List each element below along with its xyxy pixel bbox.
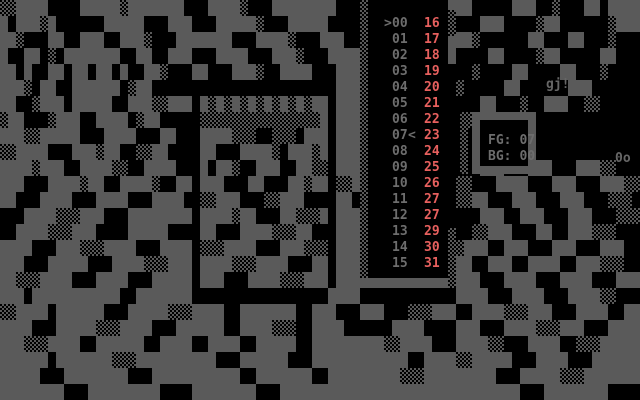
scrollbar-track-middle[interactable] bbox=[448, 64, 456, 228]
scrollbar-thumb[interactable] bbox=[448, 36, 456, 64]
art-run bbox=[608, 304, 624, 320]
art-run bbox=[72, 96, 112, 112]
palette-left-value: 13 bbox=[392, 224, 408, 240]
art-run bbox=[608, 192, 632, 208]
art-run bbox=[192, 176, 200, 192]
art-run bbox=[456, 272, 480, 288]
art-run bbox=[488, 256, 512, 272]
palette-right-value: 16 bbox=[424, 16, 440, 32]
art-run bbox=[88, 256, 112, 272]
art-run bbox=[272, 128, 296, 144]
art-run bbox=[512, 0, 536, 16]
art-run bbox=[328, 288, 360, 304]
art-run bbox=[168, 96, 192, 112]
art-run bbox=[240, 304, 296, 320]
palette-row-15[interactable]: 1531 bbox=[376, 256, 456, 272]
palette-right-value: 25 bbox=[424, 160, 440, 176]
art-run bbox=[616, 32, 640, 48]
art-run bbox=[64, 32, 80, 48]
art-run bbox=[288, 32, 296, 48]
art-run bbox=[304, 96, 312, 112]
art-run bbox=[456, 336, 488, 352]
art-run bbox=[208, 96, 216, 112]
palette-left-value: 11 bbox=[392, 192, 408, 208]
statusbox-shadow-column bbox=[460, 112, 468, 174]
palette-right-value: 22 bbox=[424, 112, 440, 128]
palette-left-value: 06 bbox=[392, 112, 408, 128]
art-run bbox=[288, 96, 296, 112]
art-run bbox=[16, 0, 48, 16]
art-run bbox=[352, 176, 360, 192]
scrollbar-track-lower[interactable] bbox=[448, 228, 456, 278]
palette-row-05[interactable]: 0521 bbox=[376, 96, 456, 112]
art-run bbox=[576, 160, 600, 176]
art-run bbox=[528, 256, 560, 272]
art-run bbox=[624, 256, 640, 272]
art-run bbox=[608, 384, 640, 400]
art-run bbox=[0, 128, 24, 144]
palette-row-03[interactable]: 0319 bbox=[376, 64, 456, 80]
art-run bbox=[560, 0, 584, 16]
art-run bbox=[192, 256, 200, 272]
art-run bbox=[608, 0, 640, 16]
art-run bbox=[32, 320, 56, 336]
art-run bbox=[552, 304, 576, 320]
art-run bbox=[168, 64, 192, 80]
bg-status-line: BG:00 bbox=[488, 150, 535, 164]
art-row bbox=[0, 112, 640, 128]
art-row bbox=[0, 208, 640, 224]
art-run bbox=[216, 48, 248, 64]
art-run bbox=[600, 288, 616, 304]
art-run bbox=[560, 320, 584, 336]
art-run bbox=[48, 32, 64, 48]
art-run bbox=[80, 0, 120, 16]
art-run bbox=[80, 160, 112, 176]
art-run bbox=[584, 320, 608, 336]
art-run bbox=[192, 288, 328, 304]
palette-row-01[interactable]: 0117 bbox=[376, 32, 456, 48]
art-run bbox=[80, 112, 96, 128]
palette-row-07[interactable]: 07<23 bbox=[376, 128, 456, 144]
art-run bbox=[336, 64, 360, 80]
art-run bbox=[80, 32, 104, 48]
fg-status-line: FG:07 bbox=[488, 134, 535, 148]
art-run bbox=[104, 240, 136, 256]
art-run bbox=[256, 64, 264, 80]
art-row bbox=[0, 240, 640, 256]
art-run bbox=[248, 272, 280, 288]
art-run bbox=[40, 48, 48, 64]
art-run bbox=[240, 96, 248, 112]
art-run bbox=[560, 336, 576, 352]
art-run bbox=[152, 176, 160, 192]
art-run bbox=[336, 304, 360, 320]
palette-left-value: 01 bbox=[392, 32, 408, 48]
art-run bbox=[128, 192, 152, 208]
art-run bbox=[168, 304, 192, 320]
art-run bbox=[128, 224, 168, 240]
art-run bbox=[472, 192, 488, 208]
art-row bbox=[0, 48, 640, 64]
corner-signature: 0o bbox=[615, 151, 631, 167]
art-run bbox=[296, 128, 304, 144]
art-run bbox=[136, 352, 216, 368]
fg-bg-status-box: FG:07 BG:00 bbox=[472, 112, 536, 174]
art-run bbox=[456, 256, 472, 272]
art-run bbox=[312, 160, 328, 176]
art-run bbox=[320, 32, 344, 48]
art-run bbox=[392, 320, 424, 336]
art-run bbox=[40, 160, 64, 176]
art-run bbox=[464, 80, 504, 96]
color-palette-panel: >001601170218031904200521062207<23082409… bbox=[360, 0, 456, 278]
art-run bbox=[328, 176, 336, 192]
art-run bbox=[328, 128, 336, 144]
art-run bbox=[608, 320, 640, 336]
art-run bbox=[480, 272, 504, 288]
art-run bbox=[128, 80, 136, 96]
art-run bbox=[544, 384, 608, 400]
art-run bbox=[40, 80, 56, 96]
art-run bbox=[64, 384, 88, 400]
palette-row-11[interactable]: 1127 bbox=[376, 192, 456, 208]
art-run bbox=[208, 160, 216, 176]
art-run bbox=[72, 272, 96, 288]
art-run bbox=[280, 64, 312, 80]
art-run bbox=[544, 16, 560, 32]
art-run bbox=[320, 112, 328, 128]
art-run bbox=[64, 368, 128, 384]
art-run bbox=[304, 176, 312, 192]
art-run bbox=[240, 192, 264, 208]
art-run bbox=[208, 64, 232, 80]
art-run bbox=[280, 272, 304, 288]
art-run bbox=[568, 224, 592, 240]
art-run bbox=[504, 240, 528, 256]
art-run bbox=[8, 112, 24, 128]
art-row bbox=[0, 176, 640, 192]
art-run bbox=[40, 96, 64, 112]
art-run bbox=[24, 336, 48, 352]
art-run bbox=[112, 160, 128, 176]
art-run bbox=[336, 192, 352, 208]
art-run bbox=[504, 208, 520, 224]
art-run bbox=[528, 96, 544, 112]
art-run bbox=[584, 96, 600, 112]
art-run bbox=[200, 272, 224, 288]
art-run bbox=[248, 96, 256, 112]
art-row bbox=[0, 336, 640, 352]
art-run bbox=[216, 224, 240, 240]
art-run bbox=[528, 304, 552, 320]
art-run bbox=[328, 96, 336, 112]
art-run bbox=[48, 336, 80, 352]
palette-right-value: 29 bbox=[424, 224, 440, 240]
art-run bbox=[472, 352, 512, 368]
art-run bbox=[568, 80, 592, 96]
art-run bbox=[152, 368, 240, 384]
palette-left-value: 03 bbox=[392, 64, 408, 80]
palette-left-value: 07 bbox=[392, 128, 408, 144]
art-run bbox=[232, 64, 256, 80]
art-run bbox=[504, 48, 536, 64]
art-run bbox=[536, 48, 544, 64]
art-run bbox=[16, 192, 40, 208]
art-run bbox=[248, 0, 272, 16]
art-run bbox=[24, 48, 40, 64]
palette-row-10[interactable]: 1026 bbox=[376, 176, 456, 192]
art-run bbox=[432, 304, 456, 320]
art-run bbox=[504, 304, 528, 320]
art-run bbox=[552, 224, 568, 240]
art-run bbox=[328, 160, 336, 176]
art-run bbox=[328, 48, 360, 64]
art-run bbox=[328, 272, 336, 288]
art-run bbox=[168, 144, 200, 160]
art-run bbox=[56, 80, 72, 96]
art-run bbox=[136, 288, 192, 304]
art-run bbox=[160, 64, 168, 80]
art-run bbox=[88, 176, 104, 192]
art-run bbox=[216, 16, 256, 32]
art-run bbox=[472, 256, 488, 272]
art-run bbox=[480, 96, 496, 112]
art-run bbox=[96, 64, 112, 80]
art-run bbox=[240, 352, 288, 368]
art-run bbox=[584, 192, 608, 208]
art-run bbox=[72, 224, 96, 240]
art-row bbox=[0, 160, 640, 176]
art-run bbox=[256, 16, 264, 32]
art-run bbox=[608, 16, 616, 32]
art-run bbox=[272, 0, 336, 16]
art-run bbox=[544, 208, 568, 224]
art-run bbox=[296, 48, 304, 64]
art-run bbox=[320, 208, 328, 224]
art-run bbox=[48, 0, 80, 16]
art-run bbox=[32, 160, 40, 176]
art-run bbox=[264, 96, 272, 112]
art-run bbox=[312, 368, 328, 384]
art-run bbox=[240, 224, 272, 240]
art-run bbox=[200, 176, 224, 192]
art-run bbox=[16, 32, 24, 48]
art-run bbox=[0, 48, 8, 64]
art-row bbox=[0, 0, 640, 16]
art-run bbox=[104, 32, 120, 48]
art-run bbox=[584, 368, 640, 384]
art-run bbox=[568, 208, 592, 224]
palette-left-value: 14 bbox=[392, 240, 408, 256]
art-run bbox=[16, 224, 48, 240]
art-run bbox=[624, 176, 640, 192]
art-run bbox=[0, 80, 24, 96]
palette-row-06[interactable]: 0622 bbox=[376, 112, 456, 128]
art-run bbox=[328, 368, 400, 384]
art-run bbox=[160, 240, 192, 256]
art-run bbox=[296, 336, 312, 352]
art-run bbox=[16, 96, 32, 112]
art-run bbox=[488, 48, 504, 64]
art-run bbox=[480, 32, 528, 48]
art-run bbox=[328, 112, 336, 128]
art-run bbox=[600, 176, 624, 192]
art-run bbox=[512, 224, 536, 240]
art-run bbox=[56, 112, 80, 128]
art-run bbox=[512, 192, 536, 208]
art-run bbox=[104, 176, 120, 192]
art-run bbox=[280, 144, 288, 160]
palette-left-value: 02 bbox=[392, 48, 408, 64]
art-run bbox=[128, 96, 152, 112]
art-run bbox=[136, 48, 152, 64]
art-run bbox=[320, 144, 328, 160]
art-run bbox=[200, 96, 208, 112]
palette-row-08[interactable]: 0824 bbox=[376, 144, 456, 160]
art-run bbox=[152, 80, 336, 96]
palette-right-value: 20 bbox=[424, 80, 440, 96]
art-run bbox=[192, 96, 200, 112]
palette-row-13[interactable]: 1329 bbox=[376, 224, 456, 240]
art-run bbox=[144, 112, 160, 128]
art-run bbox=[160, 336, 192, 352]
art-run bbox=[160, 176, 176, 192]
art-run bbox=[504, 272, 536, 288]
art-run bbox=[560, 48, 600, 64]
scrollbar-top-cap bbox=[448, 0, 456, 10]
palette-right-value: 26 bbox=[424, 176, 440, 192]
art-run bbox=[592, 224, 616, 240]
art-run bbox=[312, 352, 408, 368]
art-run bbox=[120, 32, 144, 48]
art-run bbox=[144, 16, 168, 32]
art-run bbox=[0, 384, 64, 400]
art-run bbox=[312, 256, 328, 272]
art-run bbox=[200, 160, 208, 176]
art-run bbox=[144, 336, 160, 352]
art-run bbox=[624, 240, 640, 256]
art-run bbox=[328, 208, 336, 224]
art-run bbox=[256, 384, 280, 400]
art-run bbox=[120, 144, 136, 160]
art-run bbox=[472, 32, 480, 48]
art-run bbox=[64, 48, 120, 64]
art-run bbox=[16, 16, 40, 32]
art-row bbox=[0, 64, 640, 80]
art-run bbox=[56, 304, 104, 320]
art-run bbox=[552, 240, 576, 256]
art-run bbox=[288, 16, 328, 32]
bg-value: 00 bbox=[519, 149, 535, 164]
art-run bbox=[0, 224, 16, 240]
art-run bbox=[488, 288, 512, 304]
art-run bbox=[280, 96, 288, 112]
art-run bbox=[32, 80, 40, 96]
art-run bbox=[272, 224, 296, 240]
palette-right-value: 27 bbox=[424, 208, 440, 224]
art-run bbox=[616, 48, 640, 64]
art-run bbox=[312, 304, 336, 320]
art-run bbox=[504, 16, 536, 32]
art-run bbox=[528, 32, 544, 48]
art-run bbox=[0, 112, 8, 128]
art-run bbox=[184, 192, 200, 208]
palette-row-04[interactable]: 0420 bbox=[376, 80, 456, 96]
palette-row-00[interactable]: >0016 bbox=[376, 16, 456, 32]
art-run bbox=[16, 64, 24, 80]
art-run bbox=[104, 128, 136, 144]
art-run bbox=[72, 144, 96, 160]
art-run bbox=[200, 256, 232, 272]
art-run bbox=[64, 96, 72, 112]
palette-row-09[interactable]: 0925 bbox=[376, 160, 456, 176]
art-run bbox=[48, 176, 80, 192]
art-run bbox=[128, 304, 168, 320]
art-run bbox=[136, 112, 144, 128]
art-run bbox=[224, 240, 256, 256]
palette-row-14[interactable]: 1430 bbox=[376, 240, 456, 256]
art-run bbox=[80, 336, 96, 352]
art-run bbox=[560, 16, 608, 32]
art-run bbox=[128, 0, 184, 16]
art-row bbox=[0, 304, 640, 320]
art-run bbox=[488, 336, 504, 352]
panel-left-track[interactable] bbox=[360, 0, 368, 278]
art-run bbox=[296, 320, 312, 336]
fg-label: FG: bbox=[488, 133, 511, 148]
art-run bbox=[600, 48, 616, 64]
art-run bbox=[0, 192, 16, 208]
art-run bbox=[408, 304, 432, 320]
art-run bbox=[48, 16, 56, 32]
palette-left-value: 12 bbox=[392, 208, 408, 224]
palette-left-value: 15 bbox=[392, 256, 408, 272]
art-run bbox=[384, 304, 408, 320]
art-run bbox=[224, 304, 240, 320]
art-run bbox=[192, 272, 200, 288]
art-run bbox=[520, 368, 560, 384]
palette-row-02[interactable]: 0218 bbox=[376, 48, 456, 64]
selection-cursor: > bbox=[384, 16, 392, 32]
art-run bbox=[200, 128, 232, 144]
art-run bbox=[120, 80, 128, 96]
art-run bbox=[136, 144, 152, 160]
scrollbar-track-upper[interactable] bbox=[448, 10, 456, 36]
art-run bbox=[328, 256, 336, 272]
art-run bbox=[312, 96, 328, 112]
art-run bbox=[576, 304, 608, 320]
art-run bbox=[64, 64, 72, 80]
art-run bbox=[592, 208, 616, 224]
art-run bbox=[280, 208, 296, 224]
art-run bbox=[592, 80, 640, 96]
art-run bbox=[240, 320, 272, 336]
palette-right-value: 24 bbox=[424, 144, 440, 160]
art-run bbox=[32, 96, 40, 112]
art-run bbox=[136, 128, 160, 144]
palette-row-12[interactable]: 1227 bbox=[376, 208, 456, 224]
palette-left-value: 00 bbox=[392, 16, 408, 32]
art-run bbox=[56, 16, 104, 32]
art-run bbox=[24, 32, 48, 48]
panel-scrollbar[interactable] bbox=[448, 0, 456, 278]
art-run bbox=[272, 48, 296, 64]
art-run bbox=[64, 160, 80, 176]
art-row bbox=[0, 192, 640, 208]
art-run bbox=[304, 192, 336, 208]
art-run bbox=[528, 176, 552, 192]
